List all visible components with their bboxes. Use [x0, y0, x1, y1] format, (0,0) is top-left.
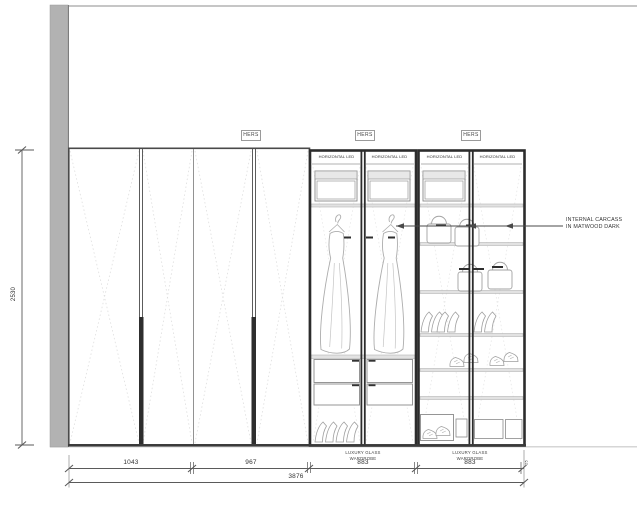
hers-label-1: HERS — [241, 130, 261, 141]
door-handle — [139, 317, 144, 444]
elevation-linework — [0, 0, 640, 505]
wardrobe-elevation-drawing: HERS HERS HERS HORIZONTAL LED HORIZONTAL… — [0, 0, 640, 505]
heel-shoes — [315, 422, 358, 442]
plain-wardrobe — [69, 148, 310, 445]
luxury-label-line1: LUXURY GLASS — [445, 450, 495, 456]
dimension-bay-1: 1043 — [101, 459, 161, 466]
horizontal-led-label-1: HORIZONTAL LED — [312, 154, 361, 159]
dimension-bay-4: 883 — [440, 459, 500, 466]
internal-carcass-annotation: INTERNAL CARCASS IN MATWOOD DARK — [566, 217, 622, 231]
top-cabinet-box — [423, 171, 465, 201]
horizontal-led-label-2: HORIZONTAL LED — [365, 154, 414, 159]
dimension-height: 2530 — [11, 281, 17, 307]
hers-label-2: HERS — [355, 130, 375, 141]
dimension-total-width: 3876 — [266, 473, 326, 480]
dimension-end-panel: 25 — [524, 456, 529, 470]
wall-section — [50, 5, 69, 447]
door-swing-lines — [421, 167, 521, 442]
horizontal-led-label-3: HORIZONTAL LED — [420, 154, 469, 159]
annotation-line2: IN MATWOOD DARK — [566, 224, 622, 231]
luxury-label-line1: LUXURY GLASS — [338, 450, 388, 456]
dimension-bay-2: 967 — [221, 459, 281, 466]
glass-wardrobe-pair-2 — [419, 151, 525, 446]
horizontal-led-label-4: HORIZONTAL LED — [473, 154, 522, 159]
glass-wardrobe-pair-1 — [310, 151, 416, 446]
top-cabinet-boxes — [315, 171, 410, 201]
dimension-bay-3: 883 — [333, 459, 393, 466]
internal-drawers — [314, 360, 413, 406]
door-handle — [252, 317, 257, 444]
door-swing-lines — [70, 151, 308, 443]
hers-label-3: HERS — [461, 130, 481, 141]
base-boxes — [421, 415, 523, 441]
heel-shoes — [421, 312, 496, 332]
annotation-leader — [396, 223, 563, 229]
annotation-line1: INTERNAL CARCASS — [566, 217, 622, 224]
